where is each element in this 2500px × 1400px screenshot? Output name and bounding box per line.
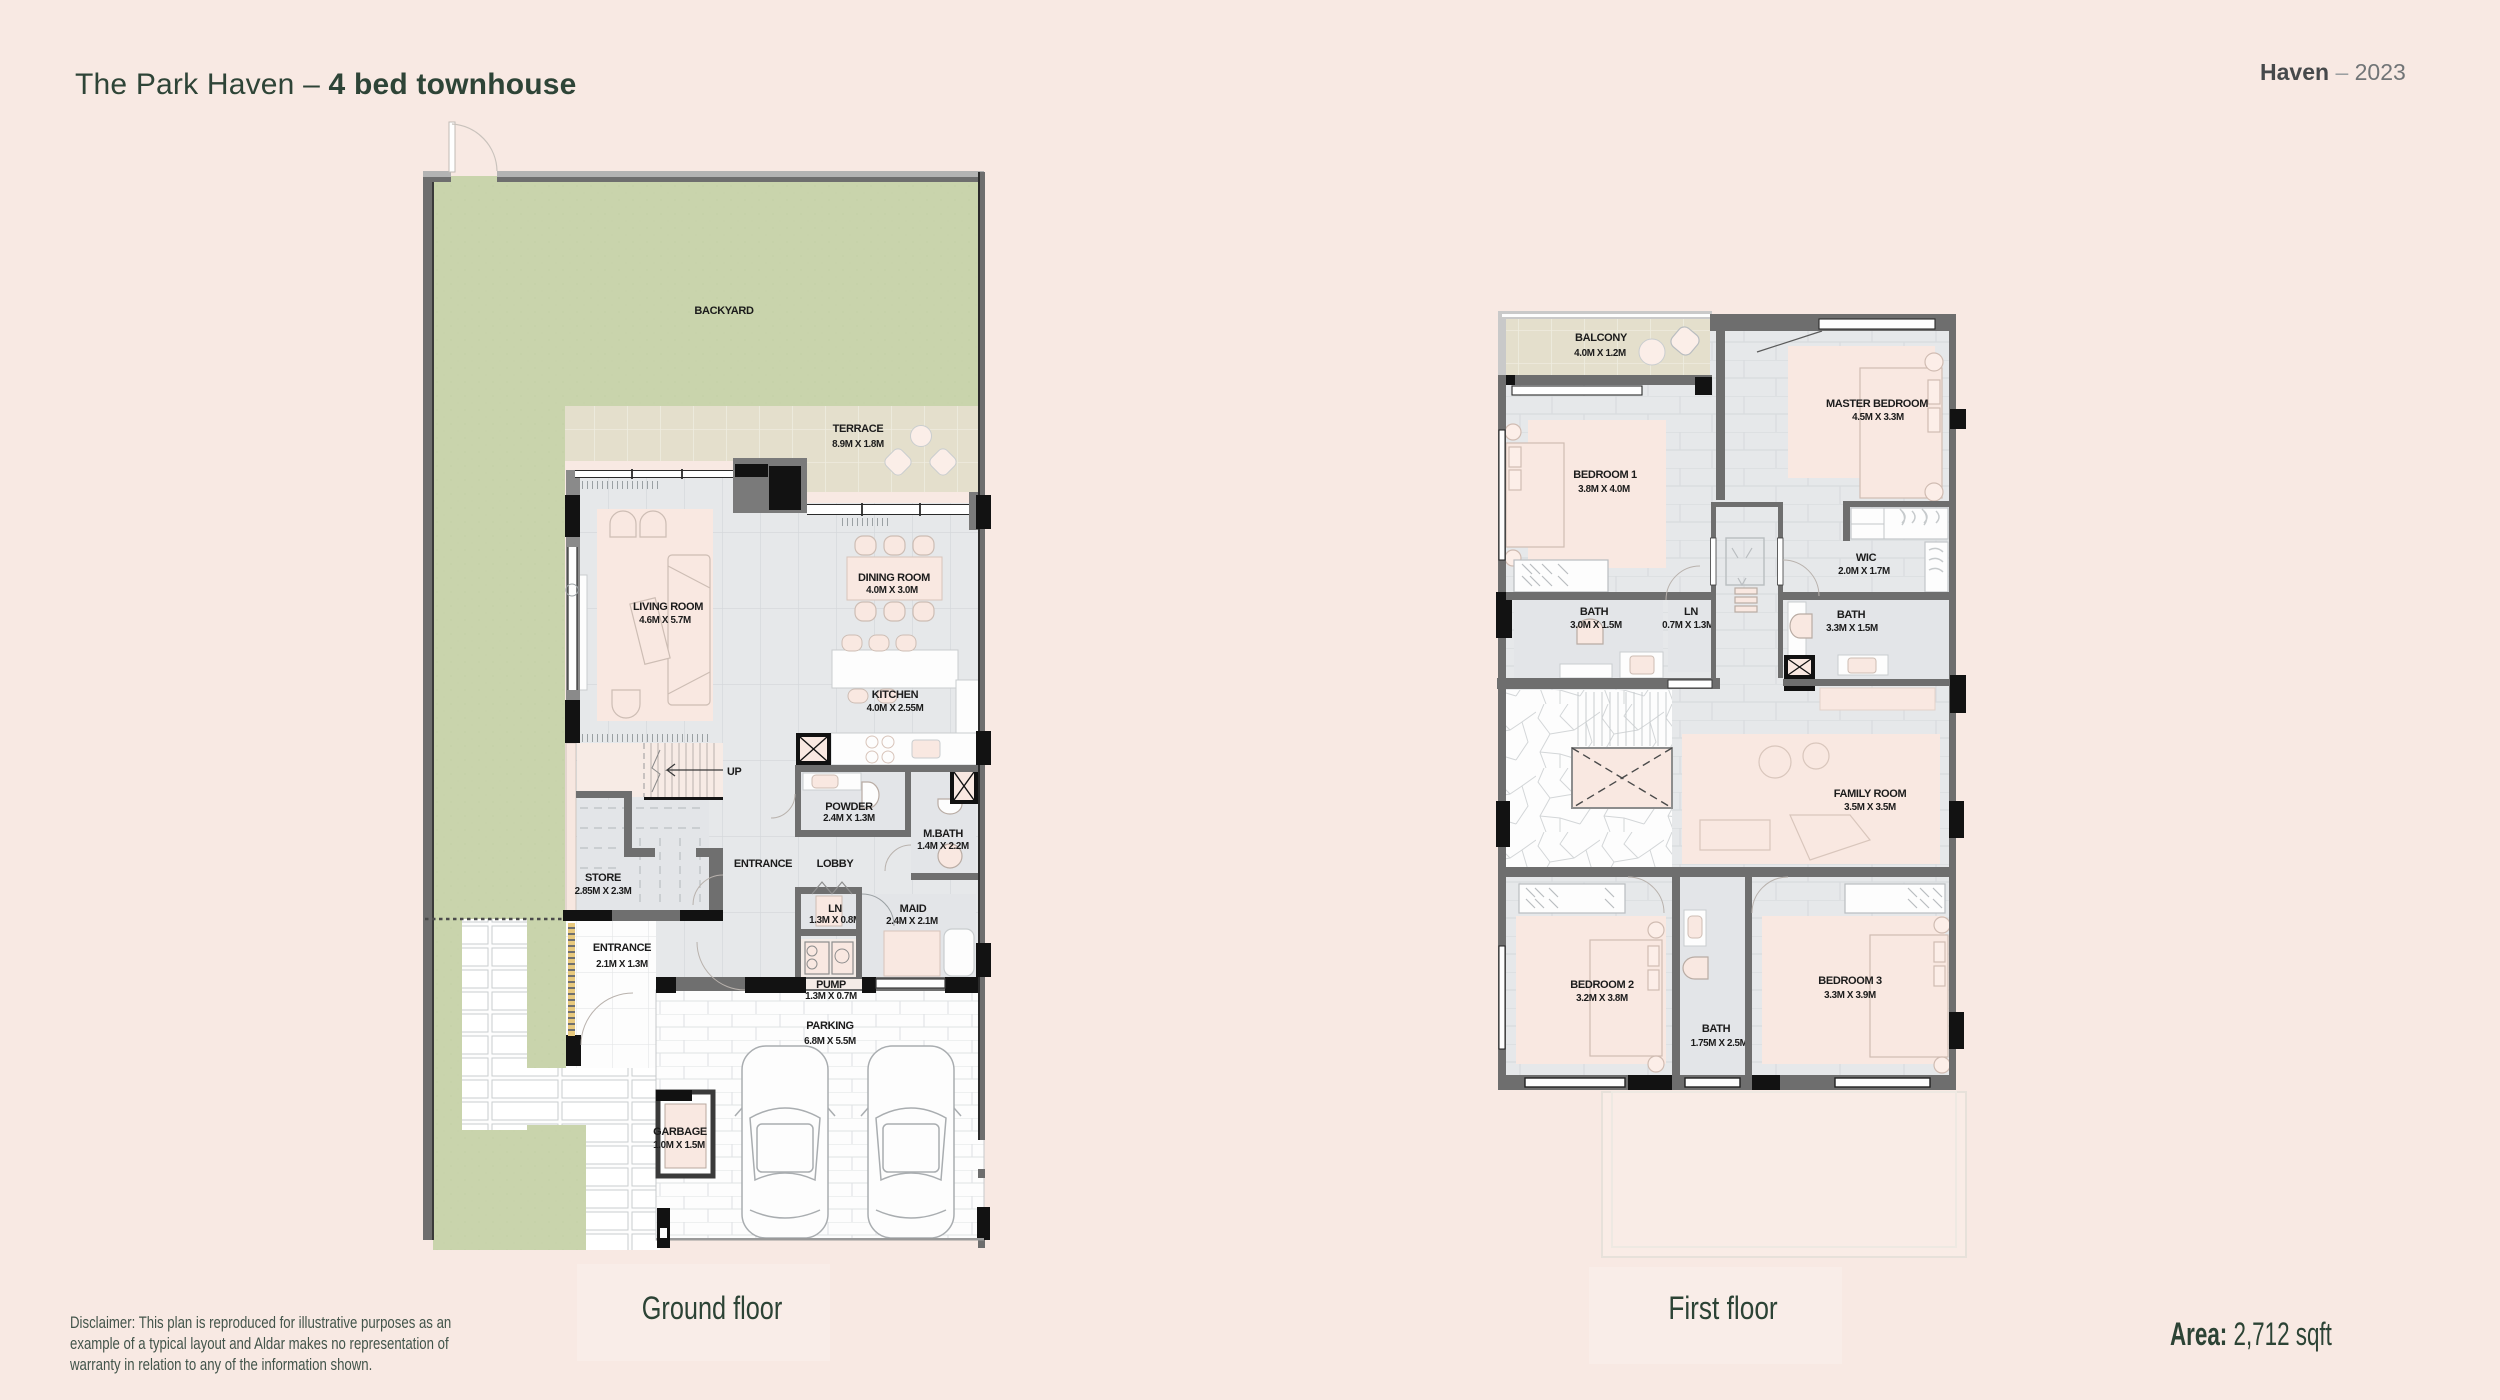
svg-text:TERRACE: TERRACE bbox=[833, 423, 884, 435]
svg-text:GARBAGE: GARBAGE bbox=[653, 1126, 707, 1138]
svg-text:4.5M X 3.3M: 4.5M X 3.3M bbox=[1852, 412, 1904, 423]
svg-text:2.4M X 1.3M: 2.4M X 1.3M bbox=[823, 813, 875, 824]
svg-text:2.1M X 1.3M: 2.1M X 1.3M bbox=[596, 959, 648, 970]
svg-text:BATH: BATH bbox=[1837, 609, 1866, 621]
svg-text:DINING ROOM: DINING ROOM bbox=[858, 572, 930, 584]
svg-text:3.2M X 3.8M: 3.2M X 3.8M bbox=[1576, 993, 1628, 1004]
svg-text:LN: LN bbox=[828, 903, 842, 915]
svg-text:LOBBY: LOBBY bbox=[817, 858, 855, 870]
svg-text:2.85M X 2.3M: 2.85M X 2.3M bbox=[575, 886, 632, 897]
svg-text:1.3M X 0.8M: 1.3M X 0.8M bbox=[809, 915, 861, 926]
svg-text:4.0M X 3.0M: 4.0M X 3.0M bbox=[866, 585, 918, 596]
svg-text:1.4M X 2.2M: 1.4M X 2.2M bbox=[917, 841, 969, 852]
svg-text:3.8M X 4.0M: 3.8M X 4.0M bbox=[1578, 484, 1630, 495]
svg-text:ENTRANCE: ENTRANCE bbox=[734, 858, 792, 870]
svg-text:BEDROOM 2: BEDROOM 2 bbox=[1570, 979, 1634, 991]
svg-text:LN: LN bbox=[1684, 606, 1698, 618]
svg-text:M.BATH: M.BATH bbox=[923, 828, 963, 840]
svg-text:UP: UP bbox=[727, 766, 741, 778]
svg-text:1.0M X 1.5M: 1.0M X 1.5M bbox=[653, 1140, 705, 1151]
svg-text:PUMP: PUMP bbox=[816, 979, 846, 991]
svg-text:BACKYARD: BACKYARD bbox=[694, 305, 754, 317]
svg-text:4.6M X 5.7M: 4.6M X 5.7M bbox=[639, 615, 691, 626]
svg-text:KITCHEN: KITCHEN bbox=[872, 689, 919, 701]
svg-text:BALCONY: BALCONY bbox=[1575, 332, 1628, 344]
svg-text:MASTER BEDROOM: MASTER BEDROOM bbox=[1826, 398, 1928, 410]
svg-text:4.0M X 1.2M: 4.0M X 1.2M bbox=[1574, 348, 1626, 359]
svg-text:3.0M X 1.5M: 3.0M X 1.5M bbox=[1570, 620, 1622, 631]
svg-text:STORE: STORE bbox=[585, 872, 621, 884]
svg-text:LIVING ROOM: LIVING ROOM bbox=[633, 601, 703, 613]
svg-text:POWDER: POWDER bbox=[825, 801, 873, 813]
svg-text:3.3M X 1.5M: 3.3M X 1.5M bbox=[1826, 623, 1878, 634]
svg-text:8.9M X 1.8M: 8.9M X 1.8M bbox=[832, 439, 884, 450]
svg-text:ENTRANCE: ENTRANCE bbox=[593, 942, 651, 954]
svg-text:FAMILY ROOM: FAMILY ROOM bbox=[1834, 788, 1907, 800]
svg-text:WIC: WIC bbox=[1856, 552, 1877, 564]
svg-text:1.75M X 2.5M: 1.75M X 2.5M bbox=[1691, 1038, 1748, 1049]
svg-text:3.5M X 3.5M: 3.5M X 3.5M bbox=[1844, 802, 1896, 813]
svg-text:BEDROOM 1: BEDROOM 1 bbox=[1573, 469, 1637, 481]
svg-text:BEDROOM 3: BEDROOM 3 bbox=[1818, 975, 1882, 987]
svg-text:PARKING: PARKING bbox=[806, 1020, 853, 1032]
svg-text:1.3M X 0.7M: 1.3M X 0.7M bbox=[805, 991, 857, 1002]
svg-text:4.0M X 2.55M: 4.0M X 2.55M bbox=[867, 703, 924, 714]
svg-text:BATH: BATH bbox=[1702, 1023, 1731, 1035]
svg-text:BATH: BATH bbox=[1580, 606, 1609, 618]
svg-text:2.0M X 1.7M: 2.0M X 1.7M bbox=[1838, 566, 1890, 577]
svg-text:MAID: MAID bbox=[900, 903, 927, 915]
svg-text:3.3M X 3.9M: 3.3M X 3.9M bbox=[1824, 990, 1876, 1001]
svg-text:0.7M X 1.3M: 0.7M X 1.3M bbox=[1662, 620, 1714, 631]
svg-text:6.8M X 5.5M: 6.8M X 5.5M bbox=[804, 1036, 856, 1047]
